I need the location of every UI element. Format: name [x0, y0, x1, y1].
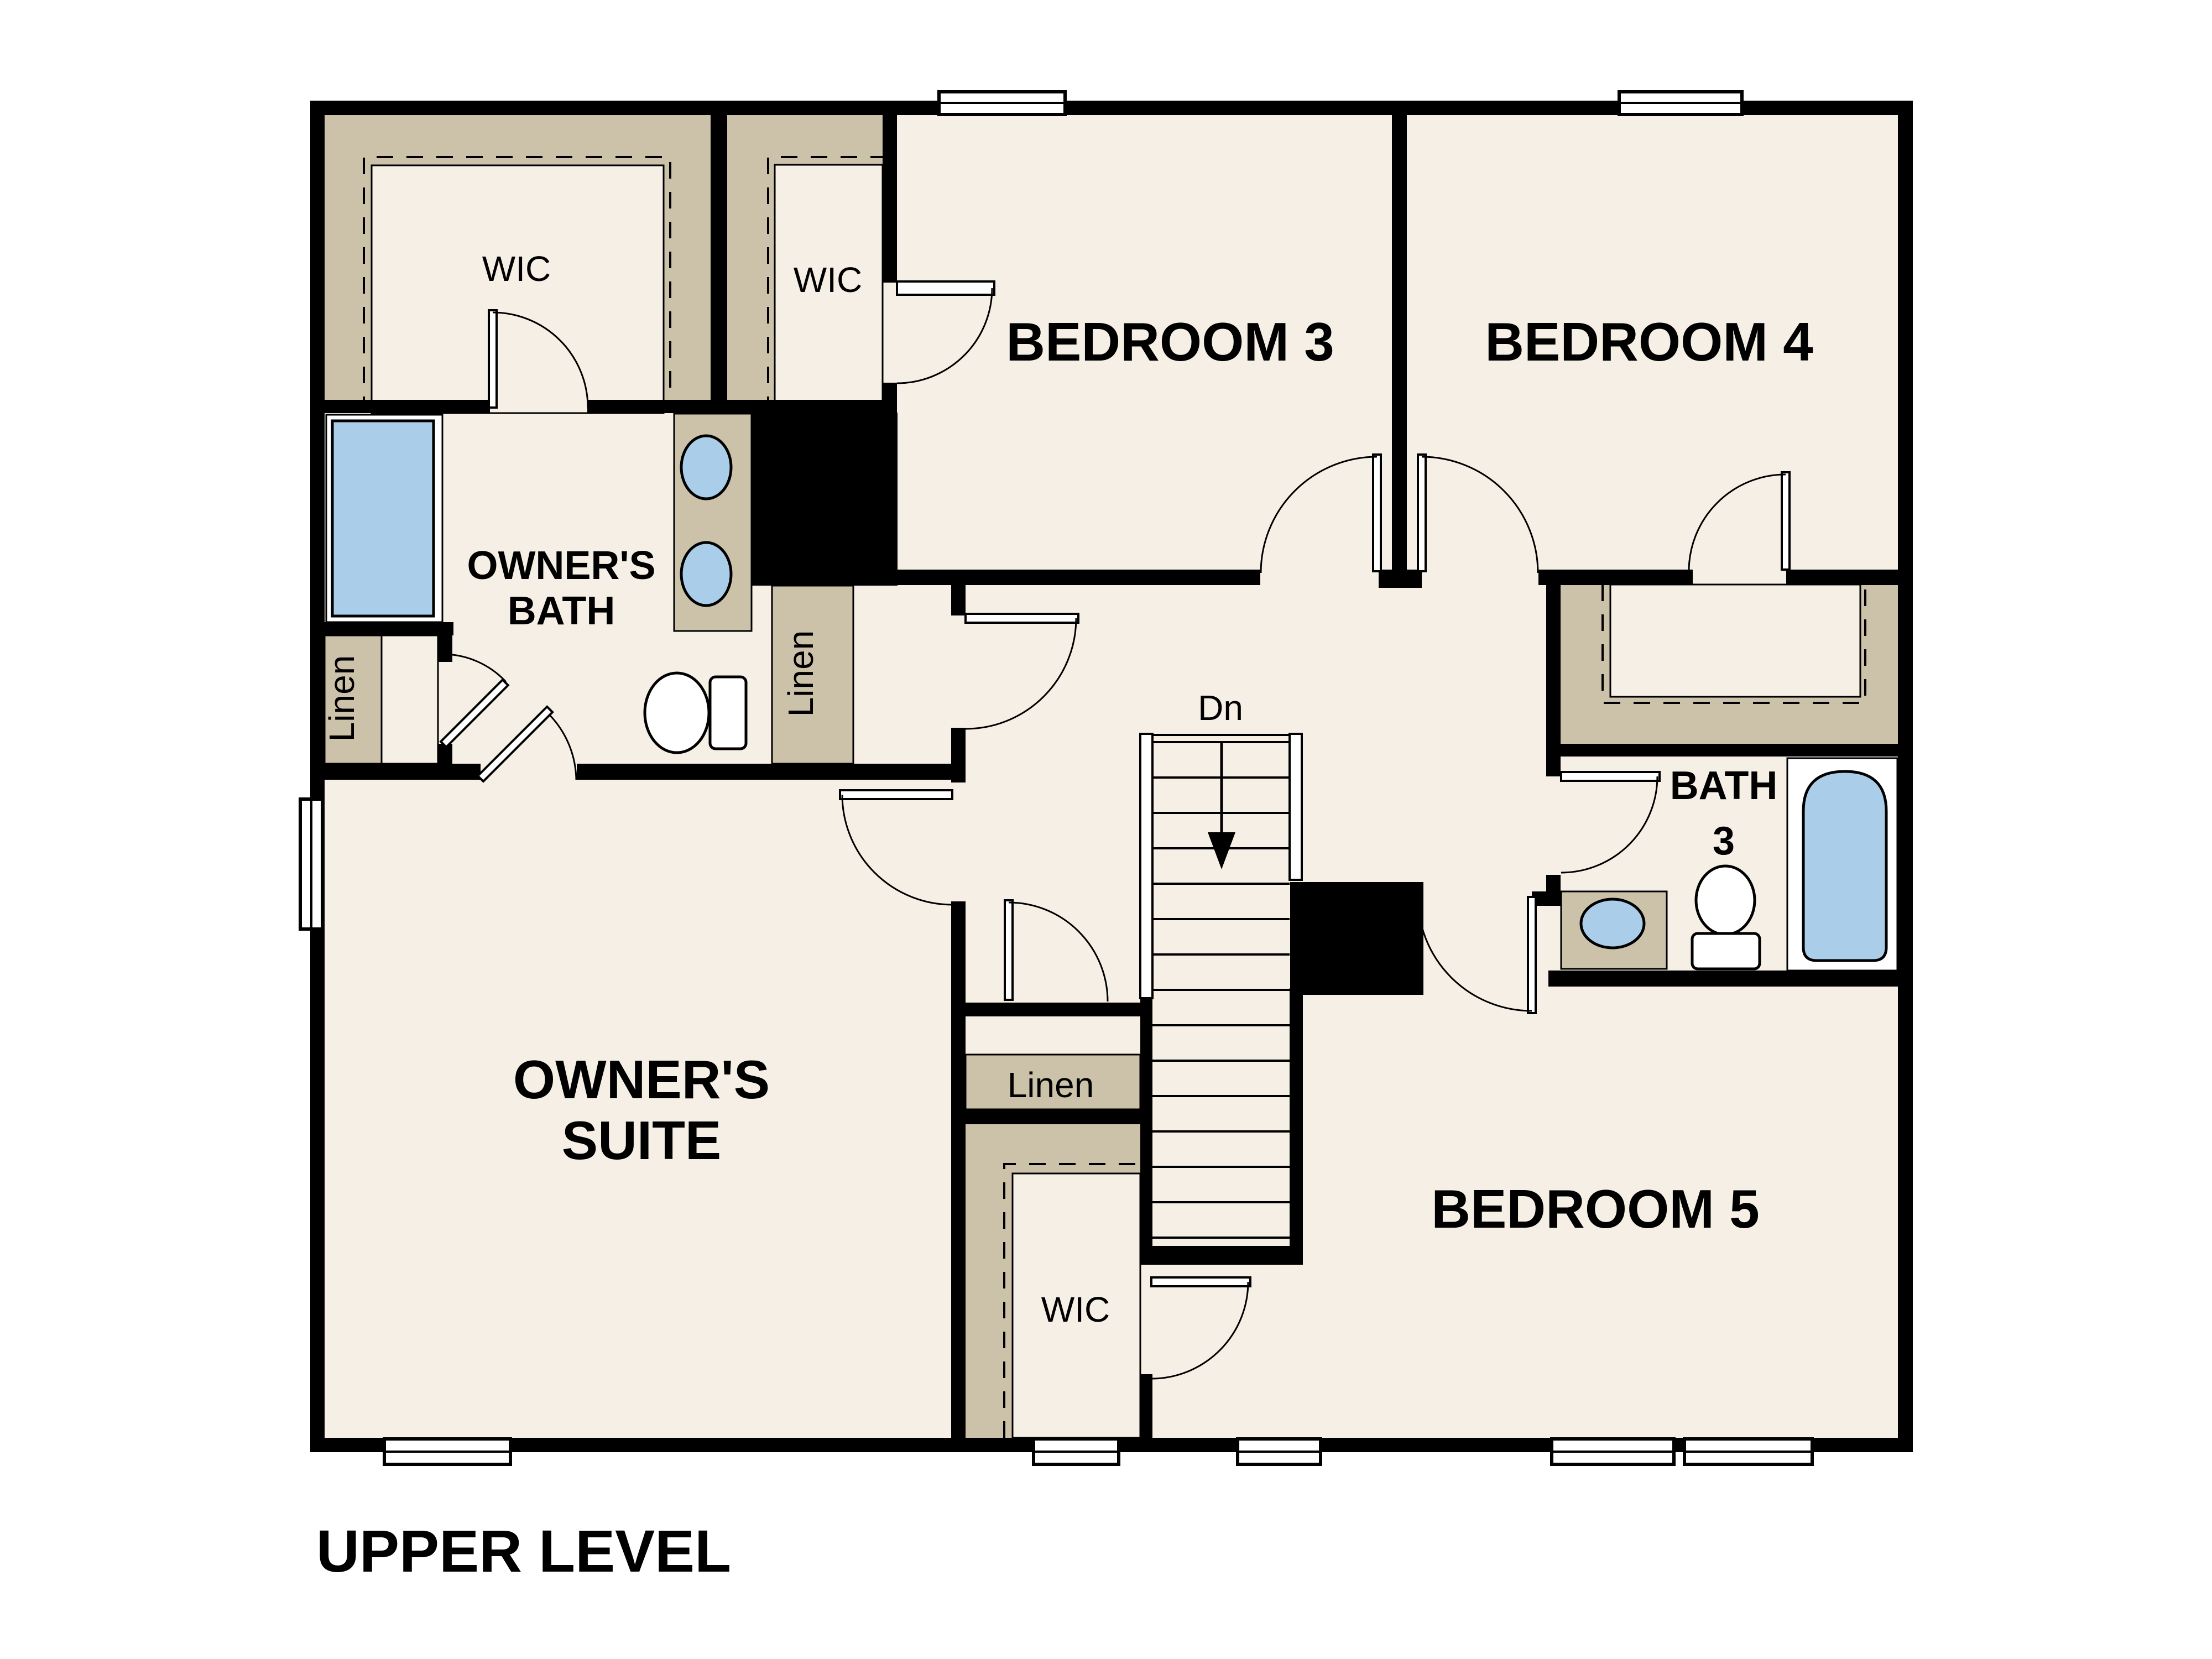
svg-text:BATH: BATH	[1670, 764, 1778, 808]
svg-text:Linen: Linen	[322, 655, 362, 742]
svg-text:WIC: WIC	[1041, 1290, 1110, 1329]
svg-text:Dn: Dn	[1198, 688, 1243, 728]
svg-text:UPPER LEVEL: UPPER LEVEL	[316, 1517, 731, 1584]
svg-text:Linen: Linen	[781, 630, 821, 717]
svg-text:BATH: BATH	[508, 589, 615, 633]
svg-text:BEDROOM 4: BEDROOM 4	[1485, 311, 1813, 372]
svg-text:BEDROOM 3: BEDROOM 3	[1006, 311, 1334, 372]
svg-text:SUITE: SUITE	[562, 1110, 722, 1171]
svg-text:WIC: WIC	[794, 260, 862, 300]
svg-text:OWNER'S: OWNER'S	[513, 1049, 770, 1110]
svg-text:BEDROOM 5: BEDROOM 5	[1431, 1178, 1760, 1239]
svg-text:OWNER'S: OWNER'S	[467, 544, 655, 588]
svg-text:Linen: Linen	[1008, 1065, 1094, 1105]
svg-text:3: 3	[1713, 819, 1735, 863]
svg-text:WIC: WIC	[482, 249, 551, 289]
